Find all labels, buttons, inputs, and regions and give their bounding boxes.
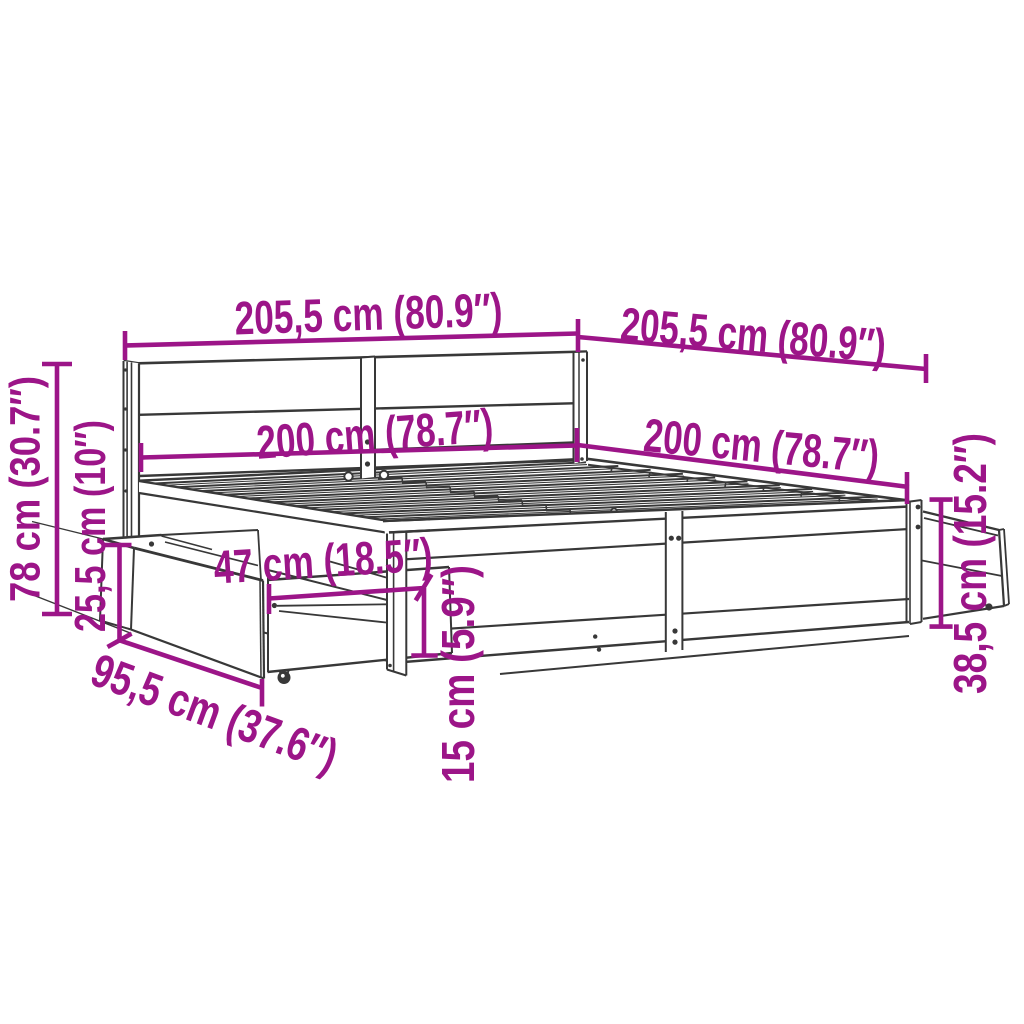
svg-text:15 cm (5.9″): 15 cm (5.9″) bbox=[432, 565, 484, 783]
svg-text:38,5 cm (15.2″): 38,5 cm (15.2″) bbox=[944, 433, 996, 694]
svg-text:205,5 cm (80.9″): 205,5 cm (80.9″) bbox=[234, 283, 504, 345]
svg-text:25,5 cm (10″): 25,5 cm (10″) bbox=[66, 420, 115, 632]
svg-text:78 cm (30.7″): 78 cm (30.7″) bbox=[2, 376, 50, 602]
